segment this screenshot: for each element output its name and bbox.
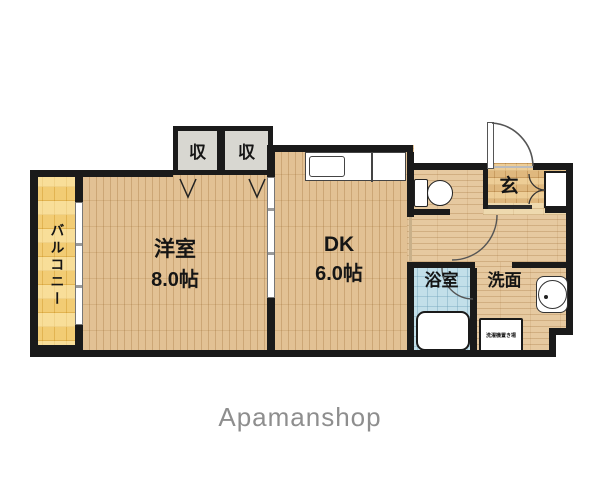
washroom-label: 洗面 <box>477 270 532 292</box>
western-room-label: 洋室 8.0帖 <box>95 233 255 292</box>
bathroom-label: 浴室 <box>414 270 469 292</box>
dk-size: 6.0帖 <box>277 257 401 286</box>
balcony-label-text: バルコニー <box>49 223 66 308</box>
bathroom-label-text: 浴室 <box>425 271 459 291</box>
shoe-cabinet-door-arc-lower <box>529 190 545 204</box>
western-room-name: 洋室 <box>95 233 255 263</box>
dk-name: DK <box>277 233 401 257</box>
washroom-label-text: 洗面 <box>488 271 522 291</box>
toilet-door-arc <box>452 215 497 260</box>
closet-door-mark-left <box>180 179 196 197</box>
floorplan-canvas: 収 収 洗濯機置き場 <box>0 0 600 480</box>
shoe-cabinet-door-arc-upper <box>529 174 545 190</box>
entrance-door-arc <box>492 123 533 166</box>
balcony-label: バルコニー <box>44 198 70 332</box>
closet-door-mark-right <box>249 179 265 197</box>
dk-label: DK 6.0帖 <box>277 233 401 286</box>
entrance-label-text: 玄 <box>499 176 518 199</box>
western-room-size: 8.0帖 <box>95 263 255 292</box>
entrance-label: 玄 <box>496 174 522 200</box>
brand-logo-text: Apamanshop <box>0 402 600 433</box>
